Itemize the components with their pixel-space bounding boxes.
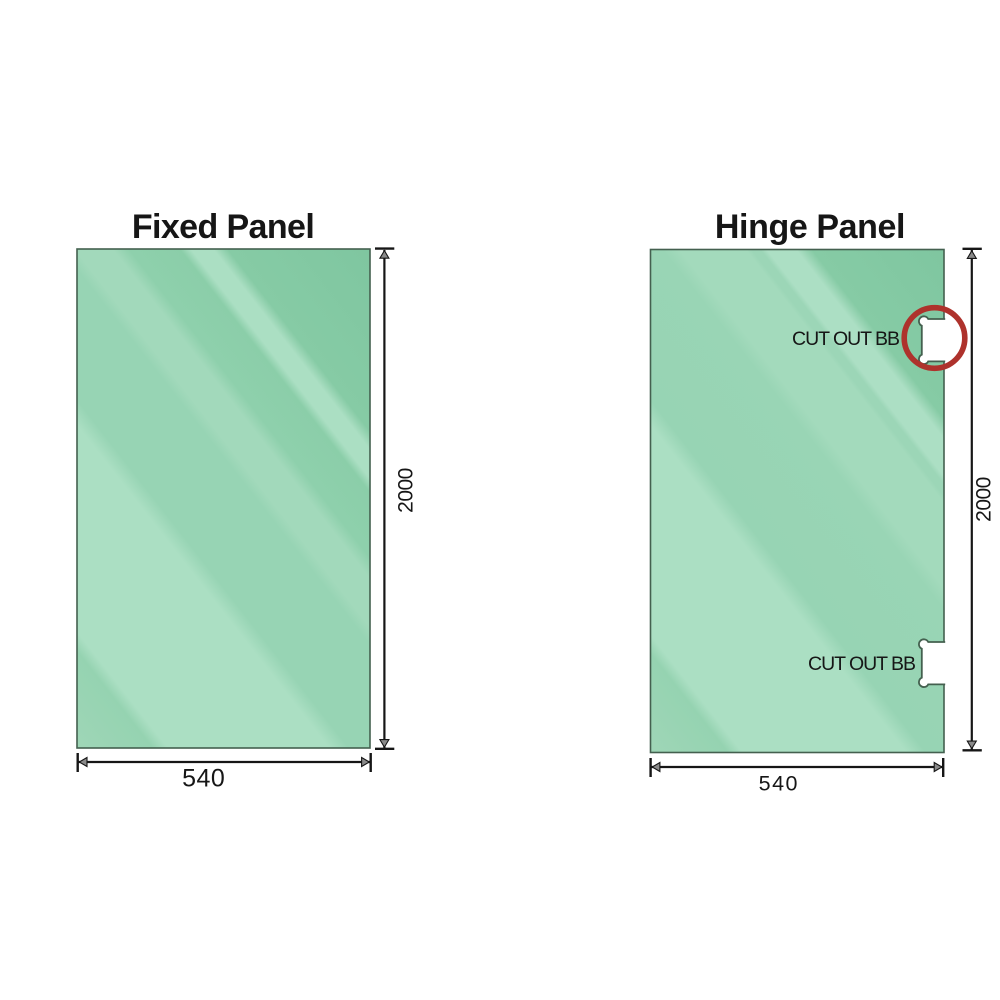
svg-text:CUT OUT BB: CUT OUT BB: [808, 653, 915, 675]
svg-text:2000: 2000: [973, 477, 996, 522]
svg-text:Hinge Panel: Hinge Panel: [715, 208, 905, 246]
svg-text:CUT OUT BB: CUT OUT BB: [792, 328, 899, 350]
svg-text:2000: 2000: [395, 468, 418, 513]
svg-text:540: 540: [759, 771, 799, 795]
svg-text:540: 540: [182, 765, 225, 793]
svg-text:Fixed Panel: Fixed Panel: [132, 208, 314, 246]
